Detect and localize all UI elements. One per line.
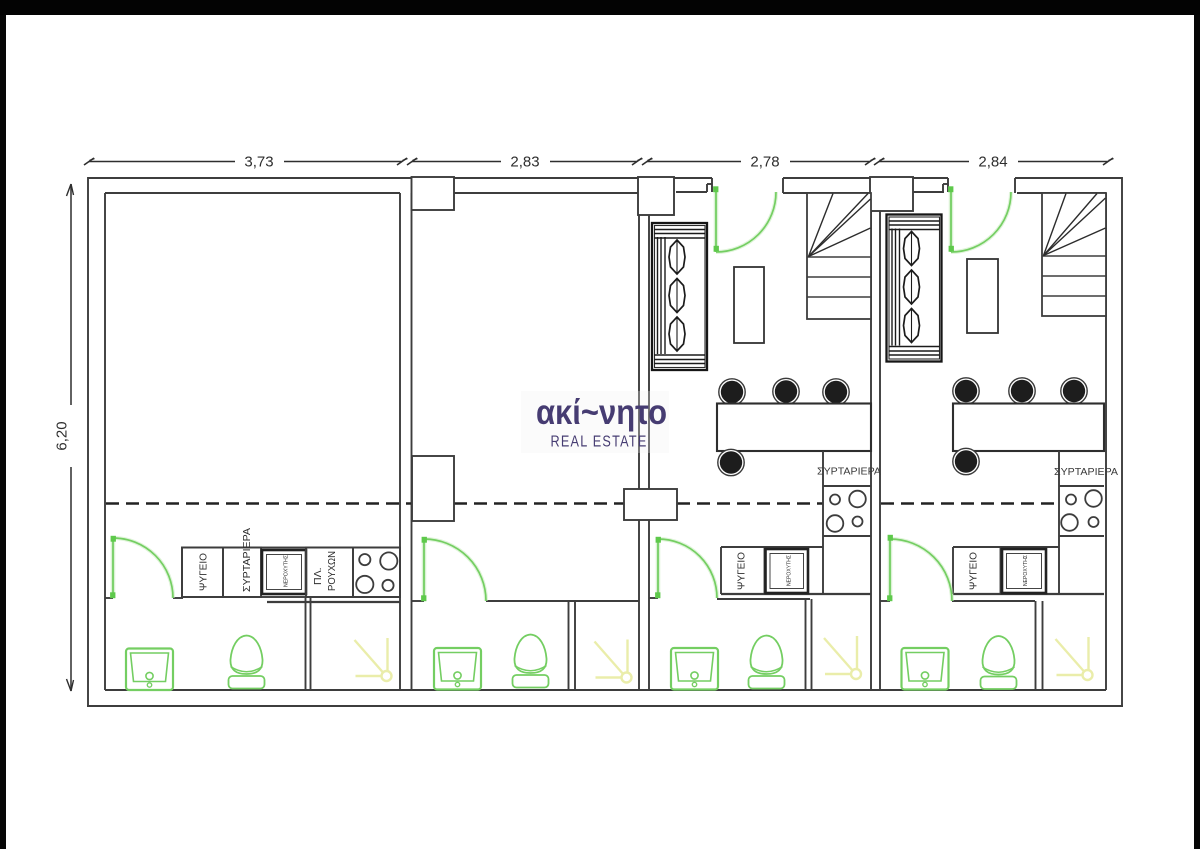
svg-text:6,20: 6,20 — [54, 421, 71, 450]
svg-text:ΠΛ.: ΠΛ. — [312, 567, 324, 585]
svg-text:3,73: 3,73 — [244, 154, 273, 171]
svg-text:ΣΥΡΤΑΡΙΕΡΑ: ΣΥΡΤΑΡΙΕΡΑ — [241, 528, 253, 592]
svg-text:2,84: 2,84 — [978, 154, 1007, 171]
svg-text:ΨΥΓΕΙΟ: ΨΥΓΕΙΟ — [736, 552, 748, 590]
svg-text:ΨΥΓΕΙΟ: ΨΥΓΕΙΟ — [968, 552, 980, 590]
svg-text:ΣΥΡΤΑΡΙΕΡΑ: ΣΥΡΤΑΡΙΕΡΑ — [817, 466, 881, 478]
svg-text:2,83: 2,83 — [510, 154, 539, 171]
svg-text:ΝΕΡΟΧΥΤΗΣ: ΝΕΡΟΧΥΤΗΣ — [1023, 555, 1029, 586]
svg-text:REAL ESTATE: REAL ESTATE — [551, 434, 648, 451]
svg-text:2,78: 2,78 — [750, 154, 779, 171]
svg-text:ΝΕΡΟΧΥΤΗΣ: ΝΕΡΟΧΥΤΗΣ — [787, 555, 793, 586]
svg-text:ΣΥΡΤΑΡΙΕΡΑ: ΣΥΡΤΑΡΙΕΡΑ — [1054, 466, 1118, 478]
svg-text:ΝΕΡΟΧΥΤΗΣ: ΝΕΡΟΧΥΤΗΣ — [284, 555, 290, 587]
svg-text:ΨΥΓΕΙΟ: ΨΥΓΕΙΟ — [198, 553, 210, 591]
svg-text:ΡΟΥΧΩΝ: ΡΟΥΧΩΝ — [326, 551, 338, 591]
svg-text:ακί~νητο: ακί~νητο — [536, 393, 667, 432]
